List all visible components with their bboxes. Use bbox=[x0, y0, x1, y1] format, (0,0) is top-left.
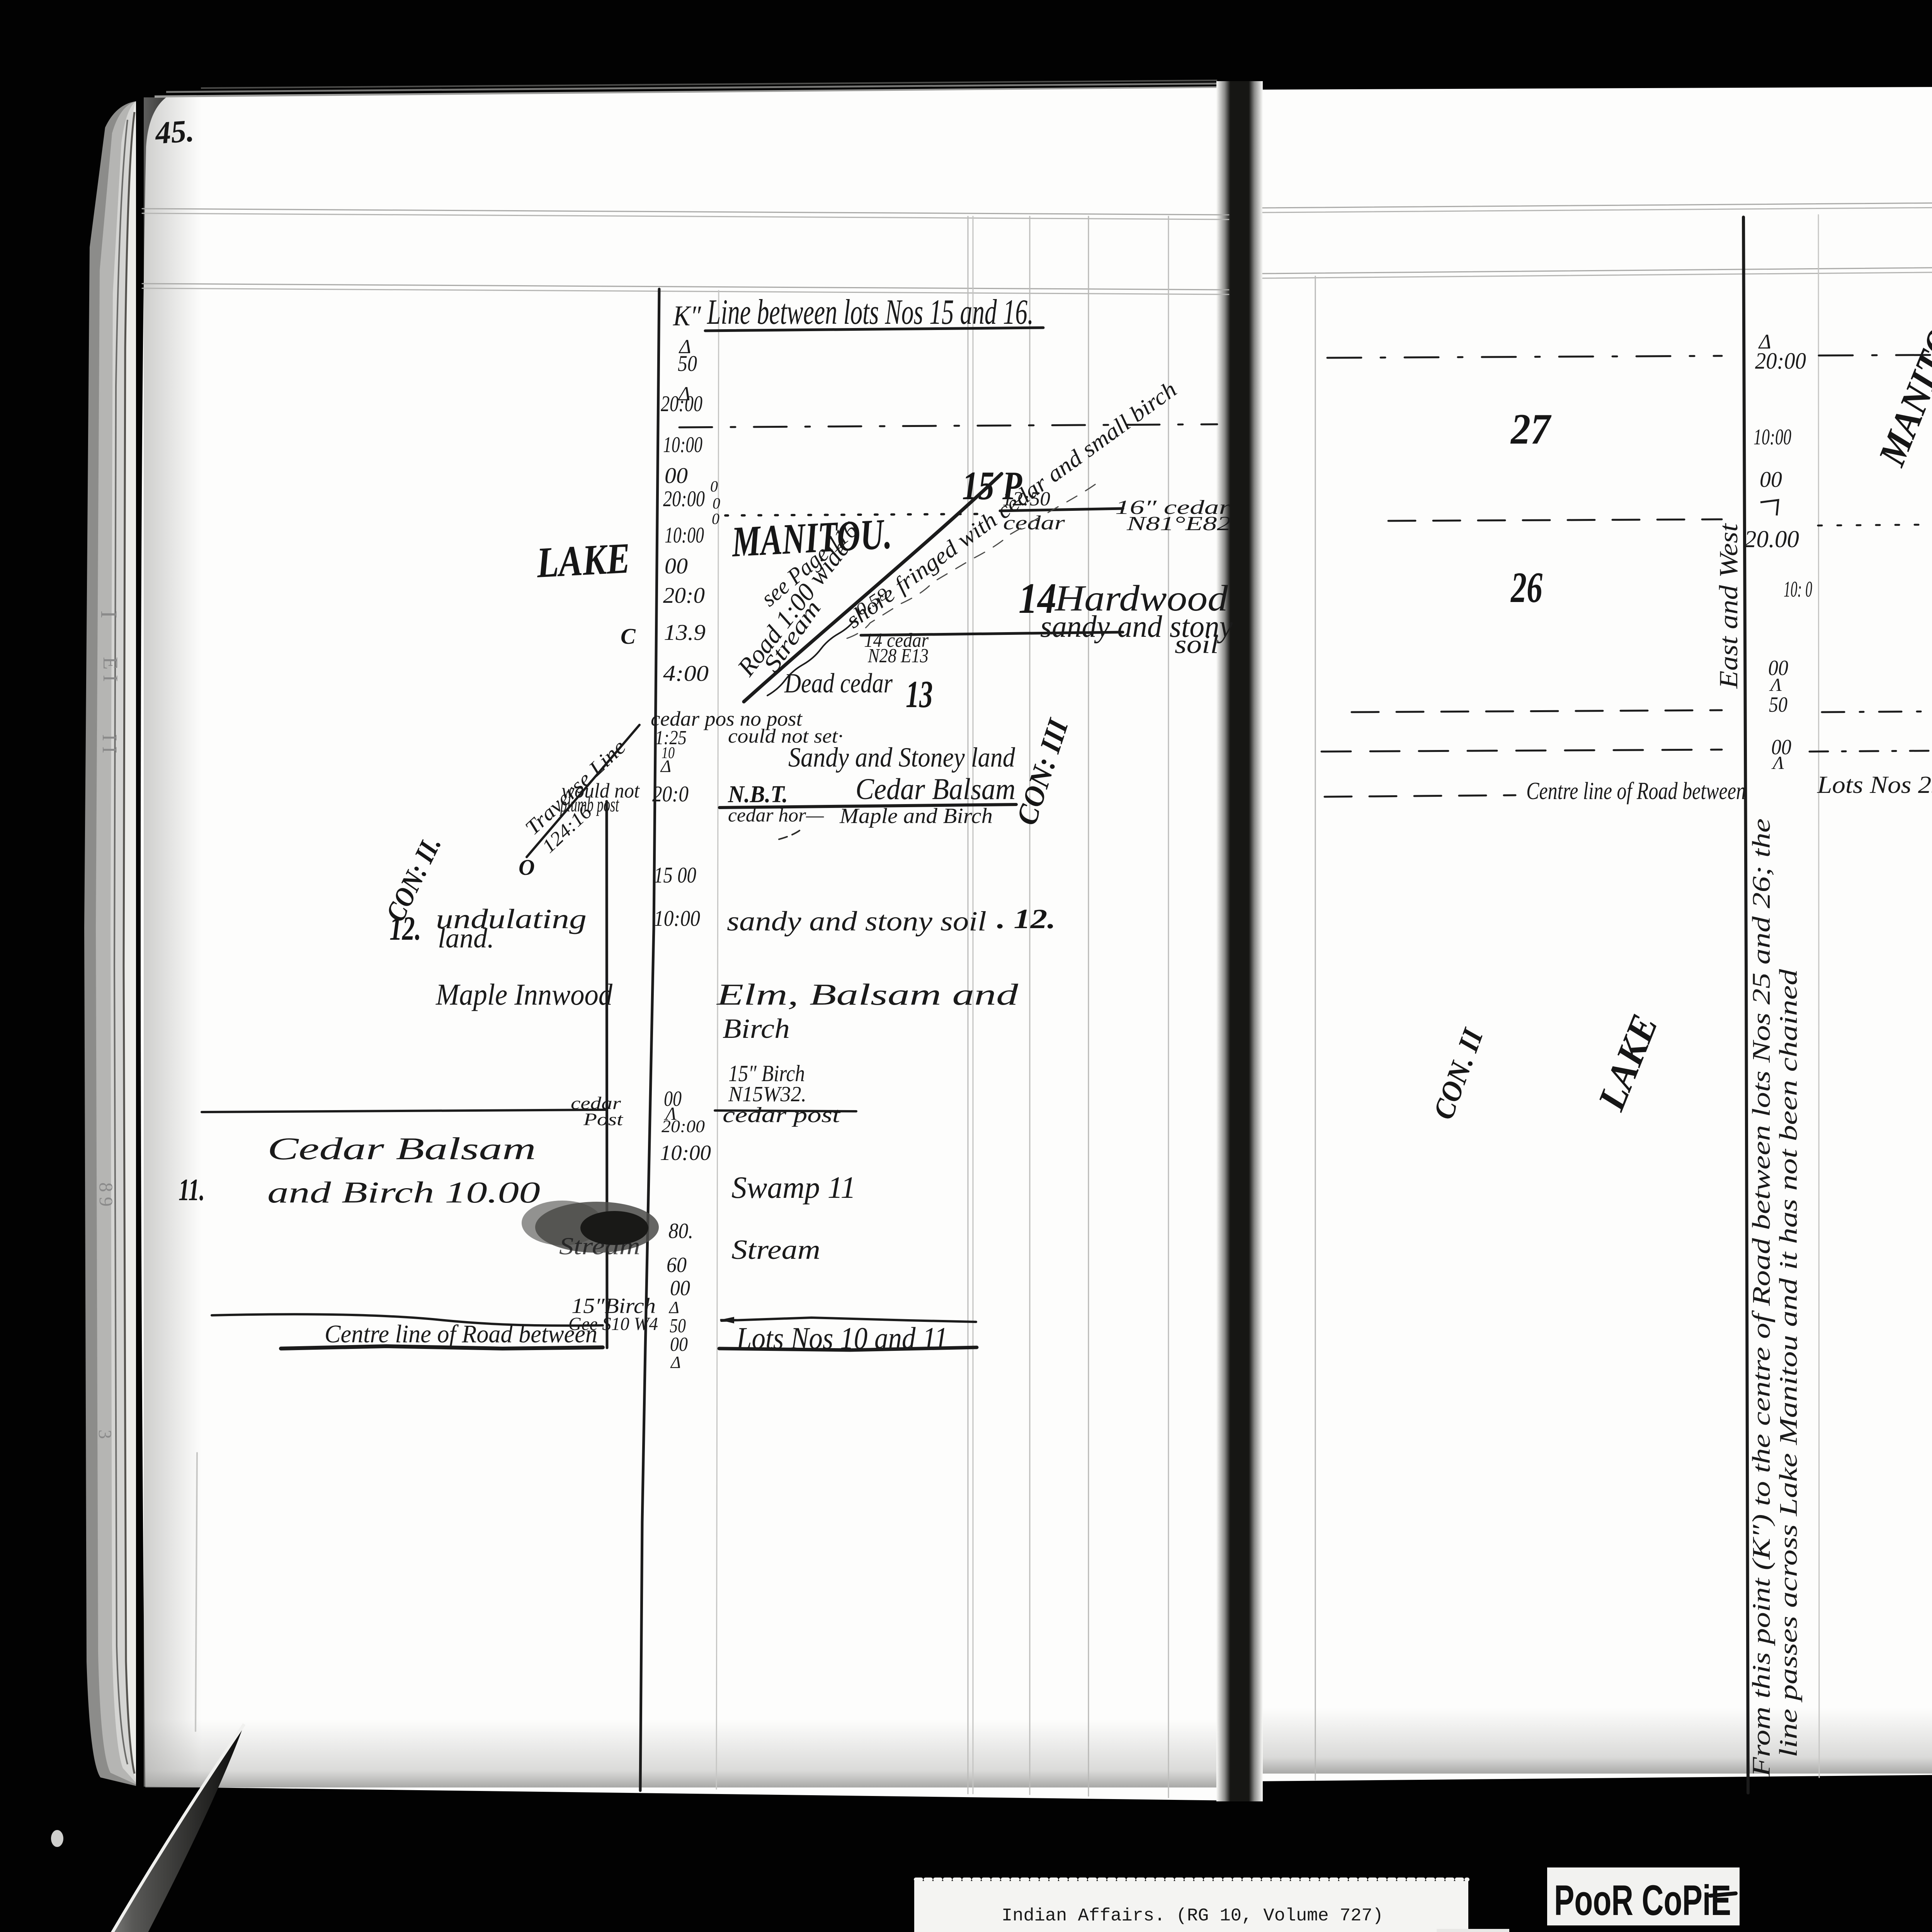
svg-text:20:00: 20:00 bbox=[663, 486, 705, 511]
svg-text:C: C bbox=[621, 624, 636, 649]
svg-text:Stream: Stream bbox=[731, 1234, 820, 1265]
svg-text:13.9: 13.9 bbox=[664, 620, 706, 645]
svg-text:10:00: 10:00 bbox=[663, 432, 702, 457]
svg-text:Swamp 11: Swamp 11 bbox=[731, 1171, 856, 1205]
svg-text:plumb post: plumb post bbox=[559, 793, 619, 816]
svg-text:Δ: Δ bbox=[668, 1298, 679, 1317]
svg-text:12.: 12. bbox=[389, 910, 421, 947]
svg-text:cedar hor—: cedar hor— bbox=[728, 804, 824, 826]
svg-text:PooR CoPiE: PooR CoPiE bbox=[1554, 1877, 1731, 1924]
svg-text:26: 26 bbox=[1510, 564, 1543, 612]
svg-text:Lots Nos 25 and 26.: Lots Nos 25 and 26. bbox=[1817, 771, 1932, 798]
svg-text:Birch: Birch bbox=[723, 1013, 790, 1044]
svg-text:soil: soil bbox=[1175, 629, 1219, 659]
svg-text:N81°E82: N81°E82 bbox=[1126, 513, 1231, 535]
svg-text:11.: 11. bbox=[179, 1173, 205, 1207]
svg-text:0: 0 bbox=[710, 478, 718, 495]
svg-text:Cedar Balsam: Cedar Balsam bbox=[267, 1131, 536, 1166]
svg-text:I I: I I bbox=[98, 734, 121, 753]
svg-text:N28 E13: N28 E13 bbox=[867, 645, 929, 667]
svg-text:10:00: 10:00 bbox=[1753, 424, 1791, 449]
svg-text:Stream: Stream bbox=[559, 1232, 640, 1260]
svg-text:Centre line of Road between: Centre line of Road between bbox=[1526, 777, 1746, 804]
svg-text:LAKE: LAKE bbox=[535, 534, 631, 587]
svg-text:4:00: 4:00 bbox=[663, 661, 709, 686]
svg-text:I: I bbox=[96, 611, 122, 618]
svg-text:line passes across Lake Manito: line passes across Lake Manitou and it h… bbox=[1774, 969, 1803, 1757]
svg-text:Maple and Birch: Maple and Birch bbox=[839, 804, 993, 828]
svg-text:Maple Innwood: Maple Innwood bbox=[435, 978, 613, 1011]
svg-text:50: 50 bbox=[678, 351, 697, 376]
svg-text:Indian Affairs. (RG 10, Volume: Indian Affairs. (RG 10, Volume 727) bbox=[1002, 1906, 1383, 1926]
svg-text:Δ: Δ bbox=[660, 756, 671, 776]
svg-text:00: 00 bbox=[665, 463, 688, 488]
svg-text:From this point (K″) to the ce: From this point (K″) to the centre of Ro… bbox=[1747, 818, 1776, 1777]
svg-text:20:00: 20:00 bbox=[662, 1116, 705, 1136]
svg-text:Line between lots Nos 15 and 1: Line between lots Nos 15 and 16. bbox=[707, 292, 1034, 332]
svg-text:sandy and stony soil: sandy and stony soil bbox=[727, 906, 986, 937]
svg-text:0: 0 bbox=[712, 510, 719, 527]
svg-text:20:00: 20:00 bbox=[661, 391, 702, 416]
svg-text:Λ: Λ bbox=[1769, 675, 1782, 695]
svg-text:80.: 80. bbox=[668, 1219, 693, 1243]
svg-text:45.: 45. bbox=[153, 113, 195, 151]
svg-text:Elm, Balsam and: Elm, Balsam and bbox=[716, 978, 1019, 1011]
svg-text:land.: land. bbox=[438, 923, 494, 954]
svg-text:13: 13 bbox=[906, 673, 933, 716]
svg-text:00: 00 bbox=[670, 1333, 688, 1355]
svg-text:Cedar Balsam: Cedar Balsam bbox=[855, 772, 1015, 806]
svg-text:cedar post: cedar post bbox=[723, 1103, 841, 1127]
svg-text:10:00: 10:00 bbox=[665, 522, 704, 548]
svg-text:3: 3 bbox=[95, 1430, 115, 1439]
svg-text:20:00: 20:00 bbox=[1755, 348, 1806, 374]
svg-text:and Birch 10.00: and Birch 10.00 bbox=[267, 1175, 540, 1209]
svg-text:27: 27 bbox=[1510, 405, 1551, 453]
svg-text:Post: Post bbox=[583, 1109, 624, 1129]
svg-text:00: 00 bbox=[670, 1276, 690, 1300]
svg-text:10:00: 10:00 bbox=[660, 1141, 711, 1165]
svg-text:N15W32.: N15W32. bbox=[728, 1082, 806, 1106]
svg-text:00: 00 bbox=[665, 553, 688, 578]
svg-text:Δ: Δ bbox=[670, 1353, 681, 1372]
svg-text:. 12.: . 12. bbox=[997, 903, 1056, 934]
svg-text:60: 60 bbox=[667, 1253, 687, 1277]
svg-text:East and West: East and West bbox=[1714, 523, 1743, 689]
svg-text:Centre line of Road between: Centre line of Road between bbox=[325, 1320, 597, 1348]
svg-text:20:0: 20:0 bbox=[652, 781, 689, 806]
svg-text:Sandy and Stoney land: Sandy and Stoney land bbox=[788, 742, 1015, 773]
svg-text:8 9: 8 9 bbox=[95, 1182, 117, 1207]
svg-text:00: 00 bbox=[1760, 467, 1782, 492]
svg-text:20.00: 20.00 bbox=[1744, 526, 1799, 553]
svg-text:10:00: 10:00 bbox=[654, 906, 700, 931]
svg-text:20:0: 20:0 bbox=[663, 583, 705, 608]
svg-text:15 00: 15 00 bbox=[654, 862, 696, 888]
svg-text:K″: K″ bbox=[673, 300, 701, 332]
svg-text:0: 0 bbox=[713, 495, 720, 512]
svg-text:10: 0: 10: 0 bbox=[1784, 577, 1812, 602]
svg-text:Dead cedar: Dead cedar bbox=[784, 668, 893, 699]
svg-text:50: 50 bbox=[1769, 693, 1787, 717]
svg-text:Λ: Λ bbox=[1771, 753, 1784, 773]
svg-text:E I: E I bbox=[99, 657, 122, 682]
svg-text:O: O bbox=[519, 855, 535, 880]
svg-text:N.B.T.: N.B.T. bbox=[728, 781, 788, 808]
